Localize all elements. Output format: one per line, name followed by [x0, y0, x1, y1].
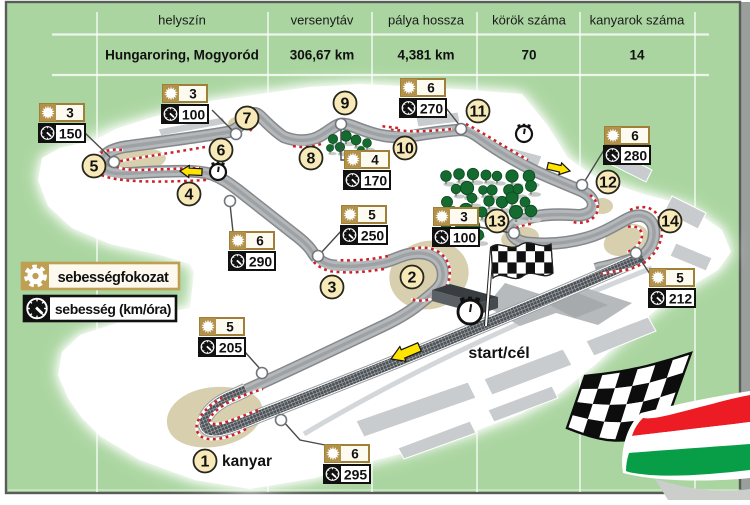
svg-text:6: 6 [256, 234, 264, 249]
svg-text:7: 7 [243, 111, 252, 128]
svg-text:sebesség (km/óra): sebesség (km/óra) [55, 301, 171, 317]
svg-text:versenytáv: versenytáv [291, 13, 354, 28]
svg-text:helyszín: helyszín [158, 13, 206, 28]
svg-text:1: 1 [201, 454, 210, 471]
svg-text:6: 6 [631, 129, 639, 144]
svg-text:306,67 km: 306,67 km [290, 48, 355, 63]
svg-text:5: 5 [226, 320, 234, 335]
svg-text:3: 3 [328, 280, 337, 297]
svg-text:6: 6 [217, 143, 226, 160]
svg-text:start/cél: start/cél [468, 345, 529, 362]
svg-text:5: 5 [90, 159, 99, 176]
svg-text:pálya hossza: pálya hossza [388, 13, 465, 28]
svg-text:100: 100 [182, 107, 206, 123]
svg-text:körök száma: körök száma [492, 13, 566, 28]
svg-text:100: 100 [453, 230, 477, 246]
svg-text:kanyar: kanyar [222, 453, 272, 470]
svg-text:10: 10 [396, 141, 414, 158]
svg-text:250: 250 [361, 228, 385, 244]
svg-text:13: 13 [488, 214, 506, 231]
svg-text:sebességfokozat: sebességfokozat [58, 270, 169, 286]
svg-text:170: 170 [364, 173, 388, 189]
svg-text:205: 205 [219, 340, 243, 356]
svg-text:2: 2 [408, 270, 417, 287]
svg-text:Hungaroring, Mogyoród: Hungaroring, Mogyoród [105, 48, 259, 63]
svg-text:5: 5 [368, 208, 376, 223]
svg-text:4,381 km: 4,381 km [397, 48, 454, 63]
svg-text:6: 6 [351, 447, 359, 462]
svg-text:6: 6 [427, 81, 435, 96]
svg-text:4: 4 [371, 153, 379, 168]
svg-text:14: 14 [629, 48, 645, 63]
svg-text:14: 14 [661, 214, 679, 231]
svg-text:3: 3 [189, 87, 197, 102]
svg-text:11: 11 [470, 104, 487, 121]
svg-text:3: 3 [460, 210, 468, 225]
svg-text:212: 212 [669, 291, 693, 307]
svg-text:3: 3 [66, 106, 74, 121]
svg-text:kanyarok száma: kanyarok száma [590, 13, 685, 28]
svg-text:295: 295 [344, 467, 368, 483]
svg-text:280: 280 [624, 148, 648, 164]
svg-text:8: 8 [307, 151, 316, 168]
svg-text:270: 270 [420, 101, 444, 117]
svg-text:4: 4 [185, 187, 194, 204]
svg-text:9: 9 [341, 96, 350, 113]
svg-text:150: 150 [59, 126, 83, 142]
svg-text:70: 70 [521, 48, 536, 63]
svg-text:12: 12 [599, 175, 617, 192]
svg-text:290: 290 [249, 254, 273, 270]
svg-text:5: 5 [676, 271, 684, 286]
